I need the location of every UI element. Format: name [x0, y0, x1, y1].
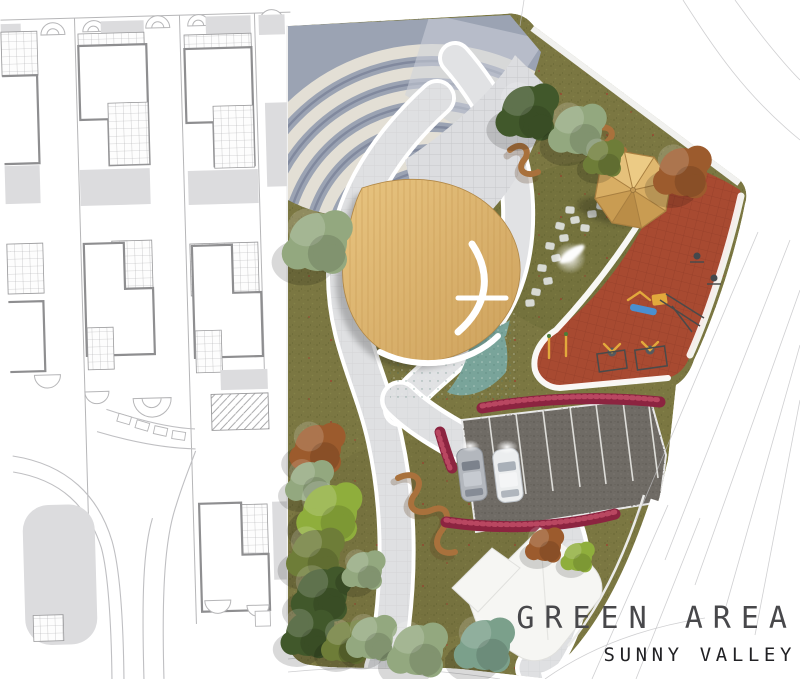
- patio-grid: [7, 243, 44, 294]
- terrace-slab: [205, 15, 250, 34]
- awning-fan: [41, 22, 65, 35]
- tree-fan: [85, 391, 109, 404]
- tree-fan: [133, 398, 172, 418]
- plot-row-middle: [7, 237, 265, 421]
- yard-slab: [5, 165, 41, 204]
- yard-slab: [265, 102, 289, 187]
- awning-fan: [145, 15, 169, 28]
- utility-box: [255, 611, 270, 626]
- hatched-area: [211, 393, 269, 431]
- project-subtitle: SUNNY VALLEY: [604, 644, 796, 666]
- project-title: GREEN AREA: [516, 601, 797, 636]
- street-network-plan: [11, 407, 201, 679]
- patio-grid: [213, 105, 255, 168]
- house-outline: [8, 301, 45, 372]
- residential-site-plan: [0, 9, 308, 679]
- terrace-slab: [258, 14, 285, 35]
- patio-grid: [87, 327, 114, 370]
- yard-slab: [188, 169, 259, 205]
- headlight-glow: [496, 440, 518, 454]
- crosswalk-dash: [117, 413, 132, 424]
- greenarea-masterplan-rendering: GREEN AREA SUNNY VALLEY: [0, 0, 800, 679]
- crosswalk-dash: [172, 431, 186, 441]
- patio-grid: [1, 31, 38, 76]
- tree-fan: [34, 375, 60, 389]
- patio-grid: [33, 615, 64, 642]
- patio-grid: [195, 330, 222, 373]
- bench-seat: [712, 342, 734, 350]
- patio-grid: [108, 102, 150, 165]
- headlight-glow: [460, 440, 480, 452]
- house-outline: [2, 75, 39, 164]
- masterplan-stage: GREEN AREA SUNNY VALLEY: [0, 0, 800, 679]
- plot-row-top: [0, 9, 289, 210]
- crosswalk-dash: [153, 426, 167, 437]
- slab: [220, 369, 268, 390]
- yard-slab: [80, 168, 151, 206]
